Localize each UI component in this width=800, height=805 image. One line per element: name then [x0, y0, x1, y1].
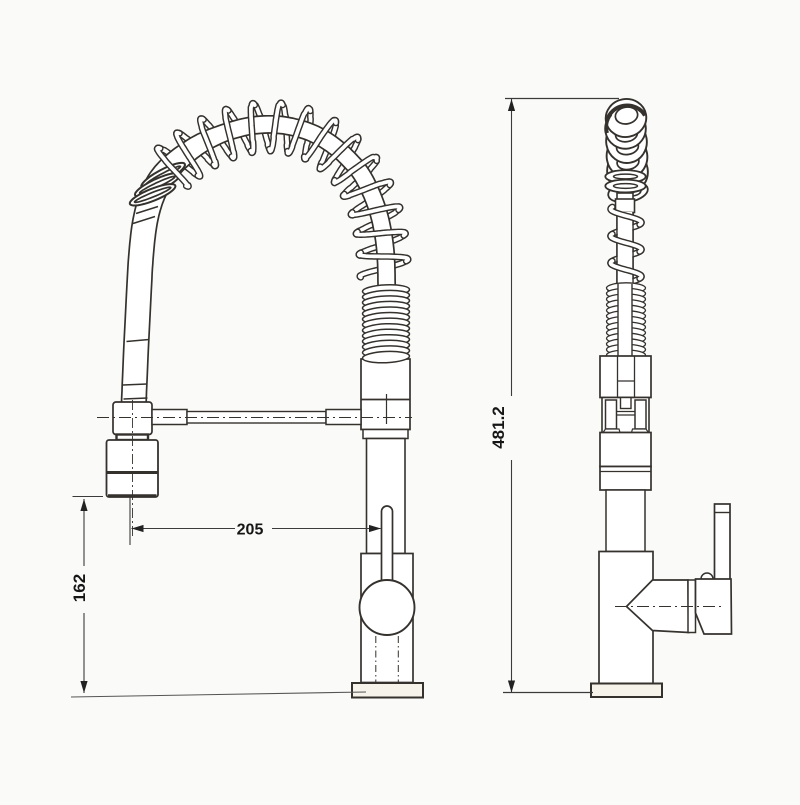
svg-text:162: 162	[70, 574, 89, 602]
svg-text:205: 205	[237, 522, 264, 539]
svg-text:481.2: 481.2	[489, 406, 508, 449]
